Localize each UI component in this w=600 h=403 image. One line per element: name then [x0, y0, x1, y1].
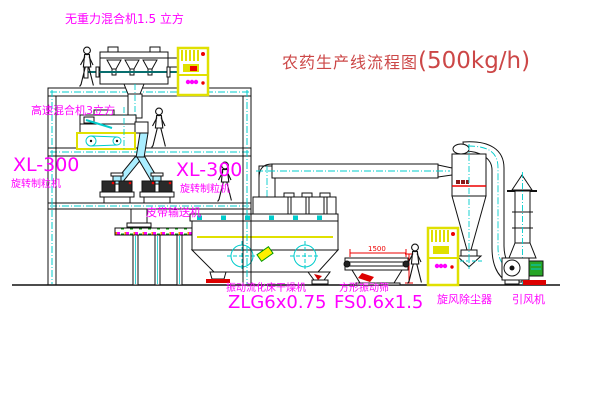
- label-high-speed-mixer: 高速混合机3立方: [31, 105, 115, 116]
- belt-conveyor: [115, 224, 200, 285]
- label-sieve-model: FS0.6x1.5: [334, 294, 423, 312]
- title-text: 农药生产线流程图: [282, 53, 418, 72]
- label-granulator-right-name: 旋转制粒机: [180, 185, 230, 195]
- sieve-width-dimension: 1500: [368, 245, 386, 253]
- label-granulator-left-model: XL-300: [13, 156, 79, 175]
- title-capacity: (500kg/h): [418, 48, 530, 74]
- person-figure: [408, 244, 422, 283]
- vibrating-sieve: [344, 249, 413, 285]
- label-draft-fan: 引风机: [512, 294, 545, 305]
- label-granulator-right-model: XL-300: [176, 161, 242, 180]
- draft-fan: [502, 258, 546, 285]
- label-belt-conveyor: 皮带输送机: [146, 207, 201, 218]
- label-cyclone: 旋风除尘器: [437, 294, 492, 305]
- flow-diagram: 农药生产线流程图(500kg/h) 无重力混合机1.5 立方 高速混合机3立方 …: [0, 0, 600, 403]
- control-cabinet-lower: [428, 228, 458, 285]
- person-figure: [152, 108, 166, 147]
- granulator-right: [140, 173, 174, 203]
- granulator-left: [100, 173, 134, 203]
- person-figure: [80, 47, 94, 86]
- page-title: 农药生产线流程图(500kg/h): [282, 48, 530, 74]
- label-granulator-left-name: 旋转制粒机: [11, 180, 61, 190]
- control-cabinet-upper: [178, 48, 208, 95]
- label-dryer-model: ZLG6x0.75: [228, 294, 327, 312]
- label-gravity-mixer: 无重力混合机1.5 立方: [65, 13, 184, 25]
